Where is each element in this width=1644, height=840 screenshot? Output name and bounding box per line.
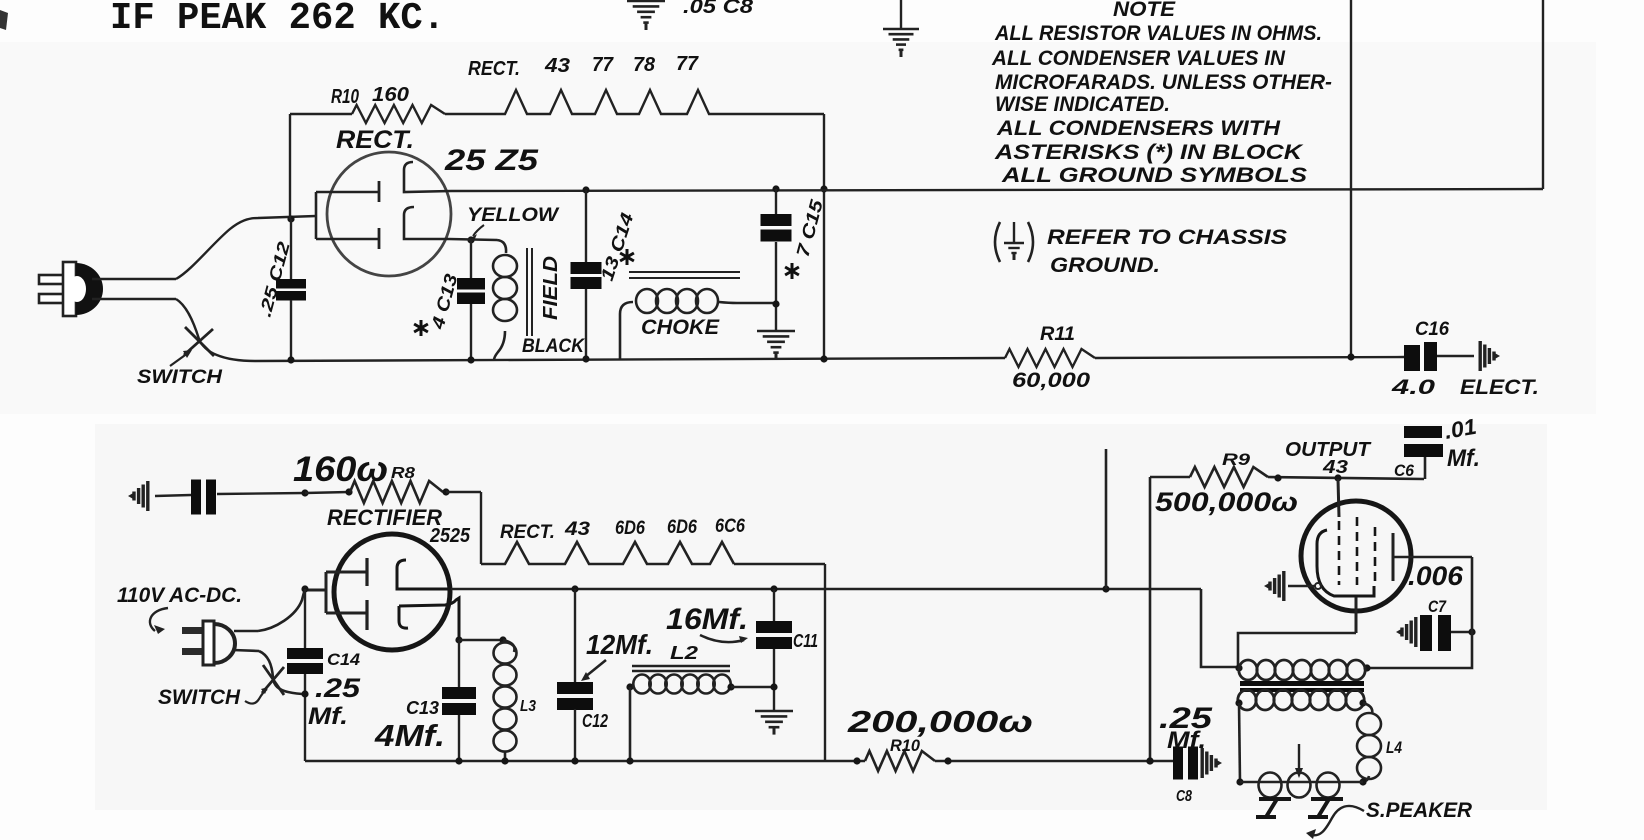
svg-text:6D6: 6D6 <box>667 517 697 538</box>
svg-text:ASTERISKS (*) IN BLOCK: ASTERISKS (*) IN BLOCK <box>994 141 1304 164</box>
svg-text:R9: R9 <box>1222 450 1251 469</box>
svg-text:110V AC-DC.: 110V AC-DC. <box>117 584 242 607</box>
svg-text:25 Z5: 25 Z5 <box>444 144 540 177</box>
svg-text:160ω: 160ω <box>293 450 388 489</box>
svg-text:C11: C11 <box>793 631 818 651</box>
svg-text:L2: L2 <box>670 643 698 663</box>
svg-text:R11: R11 <box>1040 324 1075 345</box>
svg-text:Mf.: Mf. <box>1167 727 1206 754</box>
svg-text:.006: .006 <box>1408 561 1464 591</box>
svg-text:NOTE: NOTE <box>1113 0 1176 21</box>
svg-text:C8: C8 <box>1176 788 1192 805</box>
svg-text:12Mf.: 12Mf. <box>586 629 653 660</box>
svg-text:77: 77 <box>676 53 699 75</box>
svg-text:IF PEAK 262 KC.: IF PEAK 262 KC. <box>110 0 445 40</box>
svg-text:R10: R10 <box>890 736 921 755</box>
svg-text:GROUND.: GROUND. <box>1050 254 1160 277</box>
svg-text:43: 43 <box>564 519 591 540</box>
svg-text:WISE INDICATED.: WISE INDICATED. <box>995 93 1170 116</box>
svg-text:6C6: 6C6 <box>715 516 745 537</box>
svg-text:SWITCH: SWITCH <box>158 686 241 709</box>
svg-text:Mf.: Mf. <box>308 703 348 730</box>
svg-text:Mf.: Mf. <box>1447 445 1480 472</box>
svg-text:43: 43 <box>544 55 570 77</box>
svg-text:4.0: 4.0 <box>1391 376 1436 399</box>
svg-text:REFER TO CHASSIS: REFER TO CHASSIS <box>1047 226 1287 249</box>
svg-text:BLACK: BLACK <box>522 336 585 357</box>
svg-text:500,000ω: 500,000ω <box>1155 487 1298 517</box>
svg-text:C12: C12 <box>582 711 608 731</box>
svg-text:R8: R8 <box>391 465 415 482</box>
svg-text:RECT.: RECT. <box>336 126 414 154</box>
svg-text:C16: C16 <box>1415 319 1449 340</box>
svg-text:CHOKE: CHOKE <box>641 316 720 339</box>
svg-text:R10: R10 <box>331 86 359 108</box>
svg-text:L3: L3 <box>520 698 536 715</box>
svg-text:200,000ω: 200,000ω <box>847 704 1033 739</box>
svg-text:2525: 2525 <box>429 525 471 547</box>
svg-text:.25: .25 <box>315 673 361 703</box>
svg-text:YELLOW: YELLOW <box>467 205 560 226</box>
svg-text:C7: C7 <box>1428 597 1447 616</box>
svg-text:6D6: 6D6 <box>615 518 645 539</box>
svg-text:ALL RESISTOR VALUES IN OHMS.: ALL RESISTOR VALUES IN OHMS. <box>994 22 1322 45</box>
svg-text:RECTIFIER: RECTIFIER <box>327 505 442 530</box>
svg-text:SWITCH: SWITCH <box>137 367 223 388</box>
svg-text:C13: C13 <box>406 698 439 718</box>
svg-text:.05 C8: .05 C8 <box>683 0 754 18</box>
svg-text:FIELD: FIELD <box>540 256 562 320</box>
svg-text:43: 43 <box>1322 457 1348 477</box>
svg-text:ALL GROUND SYMBOLS: ALL GROUND SYMBOLS <box>1001 164 1307 187</box>
svg-text:L4: L4 <box>1386 738 1402 757</box>
svg-text:16Mf.: 16Mf. <box>666 603 748 636</box>
svg-text:77: 77 <box>592 54 614 76</box>
svg-text:160: 160 <box>372 84 409 106</box>
svg-text:MICROFARADS. UNLESS OTHER-: MICROFARADS. UNLESS OTHER- <box>995 71 1332 94</box>
svg-text:C14: C14 <box>327 650 361 669</box>
svg-text:60,000: 60,000 <box>1012 369 1090 392</box>
svg-text:RECT.: RECT. <box>468 58 520 80</box>
svg-text:ALL CONDENSER VALUES IN: ALL CONDENSER VALUES IN <box>991 47 1286 70</box>
svg-text:78: 78 <box>633 54 656 76</box>
svg-text:ALL CONDENSERS WITH: ALL CONDENSERS WITH <box>996 117 1281 140</box>
svg-text:RECT.: RECT. <box>500 522 555 543</box>
svg-text:4Mf.: 4Mf. <box>374 718 445 753</box>
svg-text:C6: C6 <box>1394 461 1414 480</box>
svg-text:S.PEAKER: S.PEAKER <box>1366 799 1473 822</box>
svg-text:ELECT.: ELECT. <box>1460 376 1539 399</box>
